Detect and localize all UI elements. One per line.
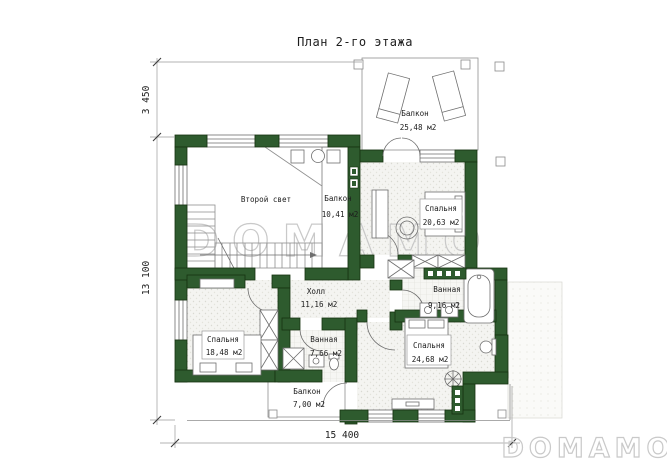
label-bathroom-2-name: Ванная — [310, 335, 337, 344]
sunbed-right — [432, 71, 465, 121]
balcony-door-leaf — [402, 138, 420, 156]
balcony-door-leaf — [383, 138, 401, 156]
bathtub — [464, 269, 494, 323]
shower — [283, 348, 304, 369]
floor-plan-page: DOMAMO — [0, 0, 667, 470]
balcony-bottom-door — [323, 383, 347, 407]
radiator-bedroom-3 — [452, 386, 463, 414]
window — [175, 165, 187, 205]
window — [207, 135, 255, 147]
closet-hall — [388, 260, 414, 278]
plan-title: План 2-го этажа — [297, 35, 413, 49]
label-bedroom-3-area: 24,68 м2 — [412, 355, 449, 364]
wardrobe-bedroom-1 — [372, 190, 388, 238]
label-hall-name: Холл — [307, 287, 325, 296]
label-balcony-bottom-name: Балкон — [293, 387, 320, 396]
tv-stand — [392, 399, 434, 409]
room-balcony-bottom — [268, 378, 345, 417]
closet-bedroom-2 — [260, 310, 278, 370]
window — [420, 150, 455, 162]
dim-house-width: 15 400 — [325, 430, 360, 441]
label-bedroom-1-name: Спальня — [425, 204, 457, 213]
label-bedroom-3-name: Спальня — [413, 341, 445, 350]
label-inner-balcony-area: 10,41 м2 — [322, 210, 359, 219]
domamo-logo: DOMAMO — [502, 433, 667, 464]
label-balcony-bottom-area: 7,00 м2 — [293, 400, 325, 409]
radiator-bathroom-1 — [424, 268, 466, 279]
floor-plan-drawing: DOMAMO — [0, 0, 667, 470]
label-second-light: Второй свет — [241, 195, 291, 204]
dresser-bedroom-2 — [200, 279, 234, 288]
window — [279, 135, 328, 147]
label-bedroom-2-area: 18,48 м2 — [206, 348, 243, 357]
label-balcony-top-area: 25,48 м2 — [400, 123, 437, 132]
label-balcony-top-name: Балкон — [401, 109, 428, 118]
table-and-chairs — [291, 150, 340, 164]
label-bathroom-2-area: 7,66 м2 — [310, 349, 342, 358]
label-inner-balcony-name: Балкон — [324, 194, 351, 203]
label-bedroom-2-name: Спальня — [207, 335, 239, 344]
label-bathroom-1-name: Ванная — [433, 285, 460, 294]
label-hall-area: 11,16 м2 — [301, 300, 338, 309]
dim-house-depth: 13 100 — [141, 261, 152, 296]
dim-balcony-depth: 3 450 — [141, 85, 152, 114]
side-terrace — [508, 282, 562, 418]
closet-bedroom-1 — [412, 255, 465, 268]
label-bedroom-1-area: 20,63 м2 — [423, 218, 460, 227]
window — [175, 300, 187, 340]
label-bathroom-1-area: 9,16 м2 — [428, 301, 460, 310]
